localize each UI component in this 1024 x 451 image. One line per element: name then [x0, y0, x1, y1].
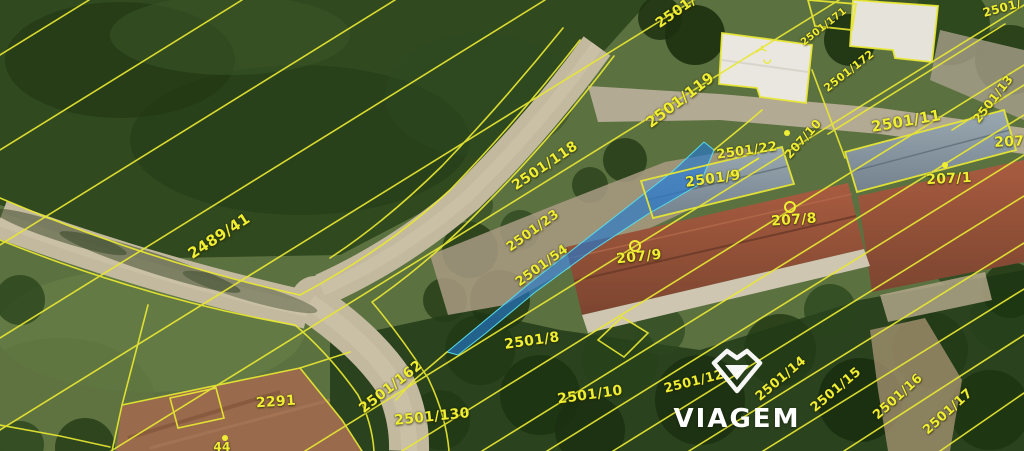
aerial-cadastral-map[interactable]: 2501/2501/1192501/1182489/412501/232501/…: [0, 0, 1024, 451]
map-canvas: [0, 0, 1024, 451]
viagem-gem-icon: [709, 348, 765, 394]
viagem-brand-text: VIAGEM: [662, 404, 812, 434]
viagem-watermark: VIAGEM: [662, 348, 812, 434]
